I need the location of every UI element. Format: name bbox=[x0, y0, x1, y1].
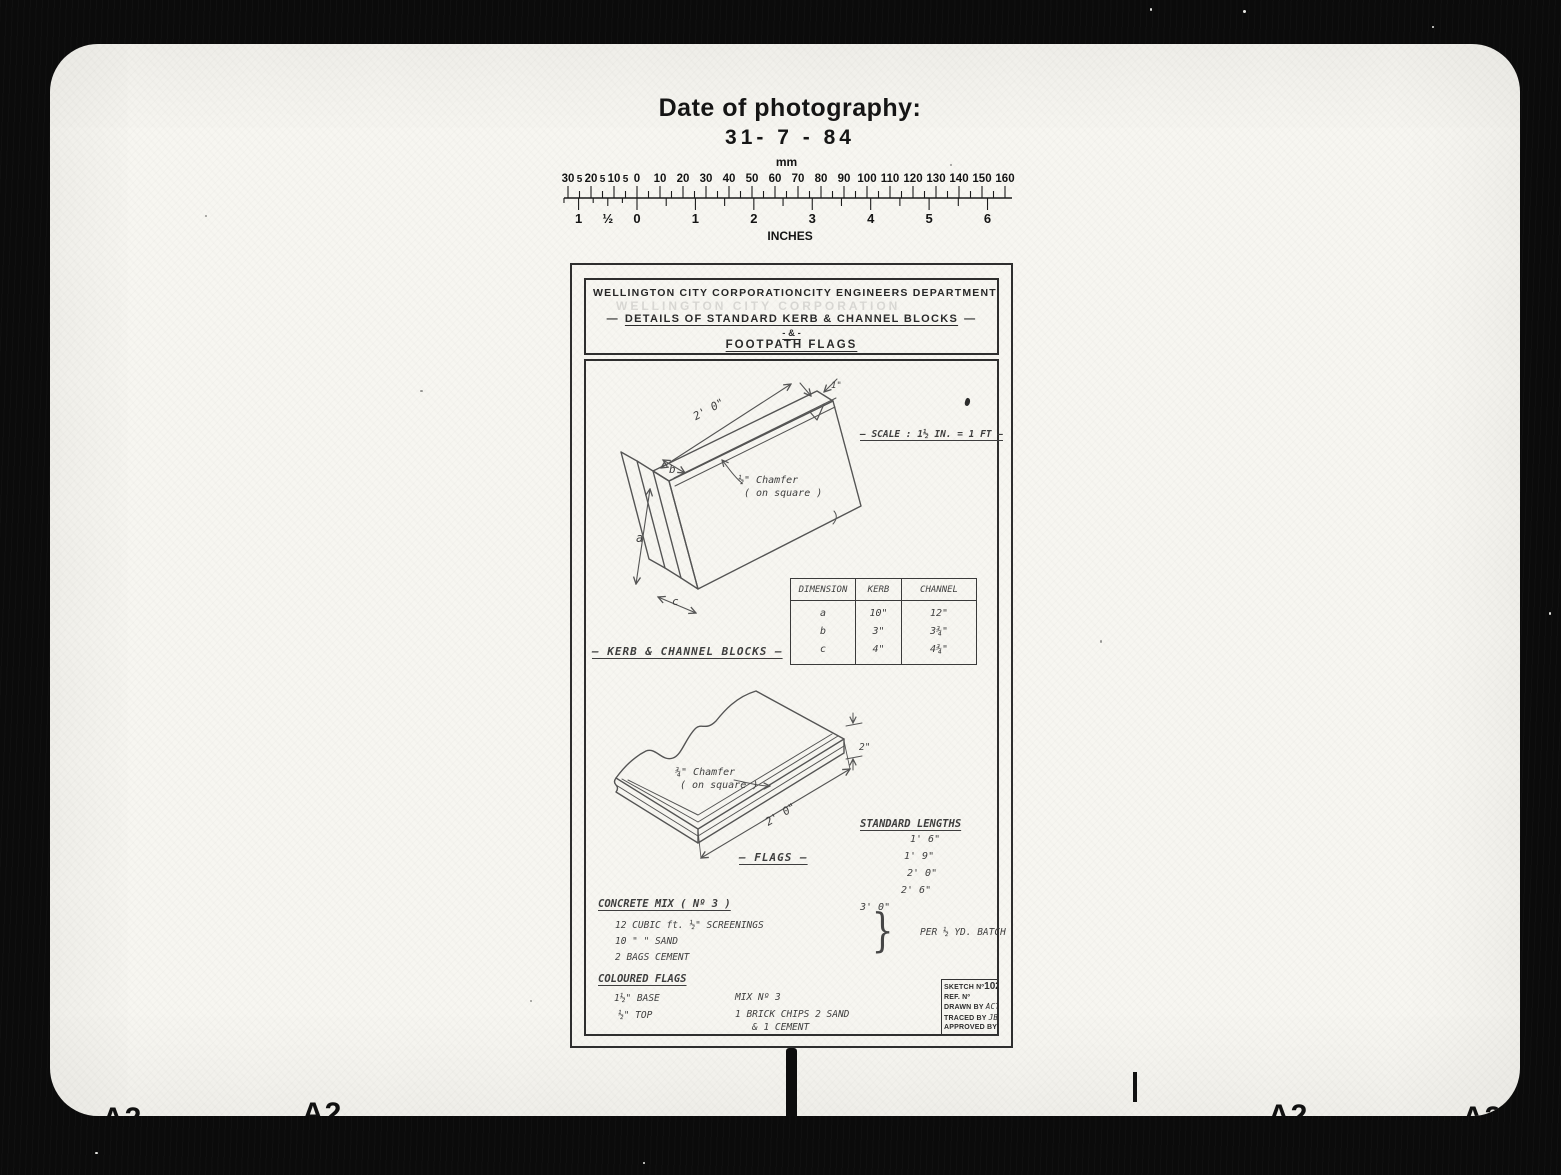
photo-sheet: Date of photography: 31- 7 - 84 30520510… bbox=[50, 44, 1520, 1116]
sketch-info-box: SKETCH Nº1021 REF. Nº DRAWN BY ACT TRACE… bbox=[941, 979, 999, 1036]
measurement-ruler: 3052051050102030405060708090100110120130… bbox=[560, 156, 1015, 246]
coloured-flags-heading: COLOURED FLAGS bbox=[598, 973, 687, 985]
coloured-flags-top-mix-2: & 1 CEMENT bbox=[752, 1022, 809, 1033]
paper-speck bbox=[420, 390, 423, 392]
film-background: Date of photography: 31- 7 - 84 30520510… bbox=[0, 0, 1561, 1175]
film-scratch bbox=[643, 1162, 645, 1164]
svg-text:INCHES: INCHES bbox=[767, 229, 812, 243]
registration-mark-thick bbox=[786, 1048, 797, 1116]
drawn-by-row: DRAWN BY ACT bbox=[944, 1002, 996, 1013]
coloured-flags-top: ½" TOP bbox=[618, 1010, 652, 1021]
svg-text:mm: mm bbox=[776, 156, 797, 169]
table-header-channel: CHANNEL bbox=[902, 579, 976, 601]
table-col-channel: 12" 3¾" 4¾" bbox=[902, 601, 976, 664]
kerb-dim-b: b bbox=[669, 463, 676, 476]
svg-text:30: 30 bbox=[562, 173, 575, 185]
drawing-title-row: —DETAILS OF STANDARD KERB & CHANNEL BLOC… bbox=[586, 313, 997, 325]
traced-by-row: TRACED BY JB. bbox=[944, 1013, 996, 1024]
drawing-title: DETAILS OF STANDARD KERB & CHANNEL BLOCK… bbox=[625, 313, 958, 325]
kerb-chamfer-note-2: ( on square ) bbox=[744, 488, 822, 499]
sketch-number: 1021 bbox=[984, 981, 999, 992]
flags-caption: — FLAGS — bbox=[739, 851, 808, 864]
concrete-mix-heading: CONCRETE MIX ( Nº 3 ) bbox=[598, 898, 731, 910]
svg-text:140: 140 bbox=[949, 173, 968, 185]
film-scratch bbox=[1432, 26, 1434, 28]
organisation-name: WELLINGTON CITY CORPORATION bbox=[593, 287, 803, 299]
kerb-chamfer-note-1: ½" Chamfer bbox=[738, 475, 798, 486]
sheet-code-a2: A2 bbox=[1462, 1101, 1502, 1116]
title-ampersand: - & - bbox=[586, 328, 997, 339]
standard-length-item: 1' 6" bbox=[910, 831, 995, 848]
title-row-org: WELLINGTON CITY CORPORATION CITY ENGINEE… bbox=[593, 287, 993, 299]
svg-text:130: 130 bbox=[926, 173, 945, 185]
standard-length-item: 1' 9" bbox=[904, 848, 995, 865]
svg-text:1: 1 bbox=[692, 211, 699, 226]
standard-length-item: 2' 0" bbox=[907, 865, 995, 882]
svg-text:150: 150 bbox=[972, 173, 991, 185]
svg-text:90: 90 bbox=[838, 173, 851, 185]
svg-text:1: 1 bbox=[575, 211, 582, 226]
title-dash-right: — bbox=[964, 313, 976, 325]
standard-lengths-block: STANDARD LENGTHS 1' 6" 1' 9" 2' 0" 2' 6"… bbox=[860, 812, 995, 916]
svg-text:6: 6 bbox=[984, 211, 991, 226]
svg-text:10: 10 bbox=[654, 173, 667, 185]
svg-text:50: 50 bbox=[746, 173, 759, 185]
svg-text:40: 40 bbox=[723, 173, 736, 185]
sketch-number-row: SKETCH Nº1021 bbox=[944, 982, 996, 993]
svg-text:½: ½ bbox=[602, 211, 613, 226]
batch-note: PER ½ YD. BATCH bbox=[920, 927, 1006, 938]
table-header-dimension: DIMENSION bbox=[791, 579, 856, 601]
drawn-by-signature: ACT bbox=[986, 1002, 999, 1011]
svg-text:0: 0 bbox=[634, 173, 640, 185]
traced-by-signature: JB. bbox=[989, 1013, 999, 1022]
date-of-photography-block: Date of photography: 31- 7 - 84 bbox=[590, 94, 990, 150]
svg-text:10: 10 bbox=[608, 173, 621, 185]
svg-text:30: 30 bbox=[700, 173, 713, 185]
scale-note: — SCALE : 1½ IN. = 1 FT — bbox=[860, 429, 1003, 440]
table-header-kerb: KERB bbox=[856, 579, 902, 601]
ghost-double-exposure-text: WELLINGTON CITY CORPORATION bbox=[616, 299, 900, 313]
svg-text:5: 5 bbox=[600, 174, 606, 185]
film-scratch bbox=[95, 1152, 98, 1154]
coloured-flags-top-mix: 1 BRICK CHIPS 2 SAND bbox=[735, 1009, 849, 1020]
concrete-mix-line-1: 12 CUBIC ft. ½" SCREENINGS bbox=[615, 920, 764, 931]
svg-text:120: 120 bbox=[903, 173, 922, 185]
standard-length-item: 2' 6" bbox=[901, 882, 995, 899]
svg-text:160: 160 bbox=[995, 173, 1014, 185]
svg-text:3: 3 bbox=[809, 211, 816, 226]
coloured-flags-base: 1½" BASE bbox=[614, 993, 660, 1004]
svg-text:5: 5 bbox=[925, 211, 932, 226]
standard-lengths-heading: STANDARD LENGTHS bbox=[860, 818, 961, 830]
date-value: 31- 7 - 84 bbox=[590, 126, 990, 150]
title-block: WELLINGTON CITY CORPORATION WELLINGTON C… bbox=[584, 278, 999, 355]
svg-text:100: 100 bbox=[857, 173, 876, 185]
film-scratch bbox=[1150, 8, 1152, 11]
dimension-table: DIMENSION KERB CHANNEL a b c 10" 3" 4" 1… bbox=[790, 578, 977, 665]
svg-text:60: 60 bbox=[769, 173, 782, 185]
brace-glyph: } bbox=[872, 903, 894, 957]
kerb-dim-c: c bbox=[672, 595, 679, 608]
svg-text:0: 0 bbox=[633, 211, 640, 226]
title-subtitle: FOOTPATH FLAGS bbox=[586, 339, 997, 351]
sheet-code-a2: A2 bbox=[102, 1102, 142, 1116]
flags-chamfer-note-2: ( on square ) bbox=[680, 780, 758, 791]
svg-text:70: 70 bbox=[792, 173, 805, 185]
date-label: Date of photography: bbox=[590, 94, 990, 123]
paper-speck bbox=[1100, 640, 1102, 643]
coloured-flags-base-mix: MIX Nº 3 bbox=[735, 992, 781, 1003]
flags-chamfer-note-1: ¾" Chamfer bbox=[675, 767, 735, 778]
svg-text:5: 5 bbox=[577, 174, 583, 185]
approved-by-row: APPROVED BY bbox=[944, 1023, 996, 1033]
sheet-code-a2: A2 bbox=[302, 1097, 342, 1116]
svg-text:2: 2 bbox=[750, 211, 757, 226]
svg-text:5: 5 bbox=[623, 174, 629, 185]
registration-mark-thin bbox=[1133, 1072, 1137, 1102]
svg-text:110: 110 bbox=[881, 173, 900, 185]
drawing-frame: WELLINGTON CITY CORPORATION WELLINGTON C… bbox=[570, 263, 1013, 1048]
film-scratch bbox=[1549, 612, 1551, 615]
table-col-kerb: 10" 3" 4" bbox=[856, 601, 902, 664]
svg-text:20: 20 bbox=[585, 173, 598, 185]
kerb-caption: — KERB & CHANNEL BLOCKS — bbox=[592, 645, 783, 658]
svg-text:20: 20 bbox=[677, 173, 690, 185]
paper-speck bbox=[205, 215, 207, 217]
svg-text:4: 4 bbox=[867, 211, 875, 226]
kerb-top-dim: 1" bbox=[831, 381, 842, 391]
film-scratch bbox=[1243, 10, 1246, 13]
svg-text:80: 80 bbox=[815, 173, 828, 185]
concrete-mix-line-2: 10 " " SAND bbox=[615, 936, 678, 947]
concrete-mix-line-3: 2 BAGS CEMENT bbox=[615, 952, 689, 963]
kerb-dim-a: a bbox=[636, 531, 643, 545]
table-col-dimension: a b c bbox=[791, 601, 856, 664]
flags-thickness-dim: 2" bbox=[859, 742, 870, 753]
title-dash-left: — bbox=[607, 313, 619, 325]
department-name: CITY ENGINEERS DEPARTMENT bbox=[803, 287, 997, 299]
paper-speck bbox=[530, 1000, 532, 1002]
ref-number-row: REF. Nº bbox=[944, 993, 996, 1003]
sheet-code-a2: A2 bbox=[1268, 1099, 1308, 1116]
